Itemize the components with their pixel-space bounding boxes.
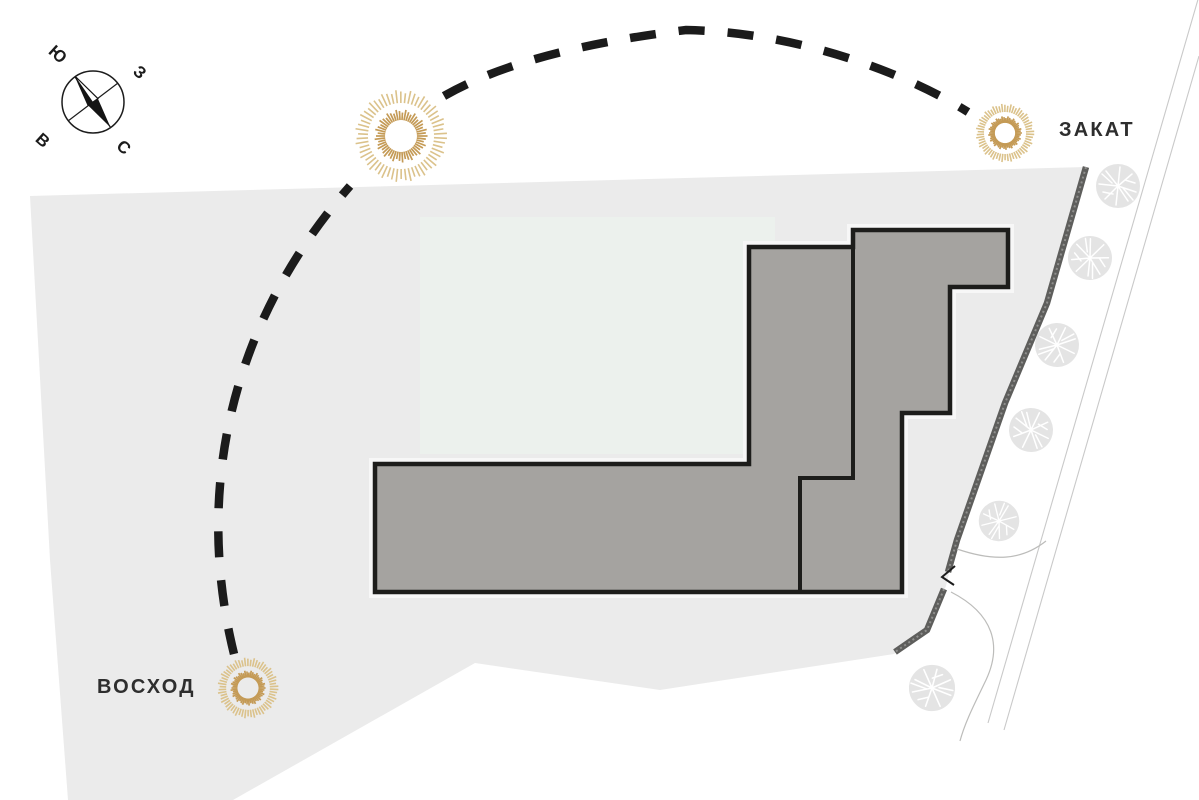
sun-ray	[392, 94, 394, 104]
sun-ray	[399, 111, 400, 120]
sun-ray	[404, 93, 405, 103]
sun-ray	[1026, 128, 1032, 129]
sun-ray	[250, 660, 251, 667]
site-plan-canvas: Ю З В С ЗАКАТ ВОСХОД	[0, 0, 1199, 800]
sun-ray	[412, 167, 415, 176]
sun-ray	[1010, 153, 1012, 161]
sun-ray	[1012, 106, 1014, 113]
sun-ray	[979, 139, 985, 141]
sun-ray	[392, 168, 394, 179]
sun-ray	[387, 167, 390, 176]
sun-icon-sunset	[976, 104, 1034, 162]
sun-ray	[250, 710, 251, 718]
sun-ray	[432, 148, 444, 153]
sun-ray	[402, 152, 403, 163]
sun-ray	[980, 123, 986, 125]
sun-ray	[396, 90, 397, 103]
compass-rose-icon: Ю З В С	[32, 41, 150, 158]
road-edge-line	[1004, 56, 1199, 730]
sun-ray	[1002, 154, 1003, 162]
sun-ray	[1009, 104, 1011, 112]
sun-ray	[233, 686, 238, 687]
sun-ray	[397, 152, 398, 159]
sun-ray	[1012, 153, 1014, 159]
sun-ray	[1007, 143, 1008, 148]
sun-ray	[408, 91, 411, 104]
sun-ray	[396, 110, 398, 120]
sun-ray	[411, 94, 415, 105]
sun-ray	[996, 153, 998, 159]
sun-ray	[356, 129, 369, 131]
sun-ray	[976, 128, 984, 129]
sun-ray	[404, 152, 405, 159]
sun-ray	[356, 141, 369, 143]
tree-icon	[1003, 402, 1059, 458]
sun-ray	[357, 138, 368, 139]
tree-icon	[1096, 164, 1140, 208]
sun-ray	[270, 683, 276, 684]
sun-ray	[231, 689, 238, 690]
compass-letter-north: С	[113, 136, 135, 158]
sun-ray	[434, 133, 447, 134]
walkway-line	[957, 541, 1046, 557]
sun-ray	[399, 152, 400, 161]
sun-ray	[988, 134, 995, 135]
compass-letter-south: Ю	[45, 41, 71, 67]
sunset-label: ЗАКАТ	[1059, 119, 1135, 142]
sunrise-label: ВОСХОД	[97, 676, 196, 699]
sun-ray	[1026, 136, 1033, 137]
sun-ray	[978, 126, 985, 128]
compass-letter-west: З	[129, 62, 150, 83]
sun-ray	[258, 689, 264, 690]
sun-ray	[433, 145, 443, 148]
tree-icon	[973, 495, 1025, 547]
sun-ray	[250, 698, 251, 703]
sun-ray	[434, 129, 444, 131]
sun-ray	[1002, 104, 1003, 112]
sun-ray	[416, 140, 423, 142]
sun-ray	[415, 97, 419, 106]
sun-ray	[405, 169, 406, 180]
sun-ray	[233, 691, 238, 692]
sun-ray	[375, 138, 386, 139]
sun-ray	[415, 166, 420, 176]
sun-ray	[417, 138, 426, 139]
sun-ray	[1007, 106, 1008, 112]
sun-ray	[433, 124, 444, 127]
sun-ray	[258, 686, 264, 687]
sun-ray	[361, 120, 370, 124]
sun-ray	[358, 124, 369, 127]
sun-ray	[379, 99, 384, 107]
sun-ray	[430, 116, 439, 121]
sun-ray	[991, 136, 996, 137]
sun-ray	[434, 138, 447, 139]
sun-ray	[999, 154, 1001, 161]
sun-ray	[990, 131, 995, 132]
sun-ray	[1025, 139, 1031, 141]
courtyard-area	[420, 217, 775, 454]
compass-letter-east: В	[32, 129, 54, 151]
sun-ray	[245, 710, 246, 719]
sun-ray	[996, 106, 998, 113]
sun-ray	[360, 145, 370, 148]
sun-ray	[1025, 125, 1032, 127]
sun-ray	[378, 140, 385, 142]
sun-ray	[976, 136, 984, 137]
sun-ray	[1007, 154, 1008, 161]
sun-icon-midday	[356, 90, 447, 181]
sun-ray	[1015, 134, 1021, 135]
sun-ray	[1015, 131, 1021, 132]
sun-ray	[387, 94, 391, 105]
sun-ray	[396, 169, 397, 182]
sun-path-arc	[444, 30, 968, 112]
tree-icon	[900, 656, 963, 719]
sun-ray	[417, 133, 426, 134]
walkway-line	[951, 592, 994, 741]
sun-ray	[434, 141, 445, 143]
sun-ray	[360, 148, 371, 152]
sun-ray	[245, 658, 246, 667]
sun-ray	[378, 133, 385, 134]
sun-ray	[404, 110, 406, 120]
sun-ray	[408, 168, 411, 181]
sun-ray	[999, 106, 1000, 112]
